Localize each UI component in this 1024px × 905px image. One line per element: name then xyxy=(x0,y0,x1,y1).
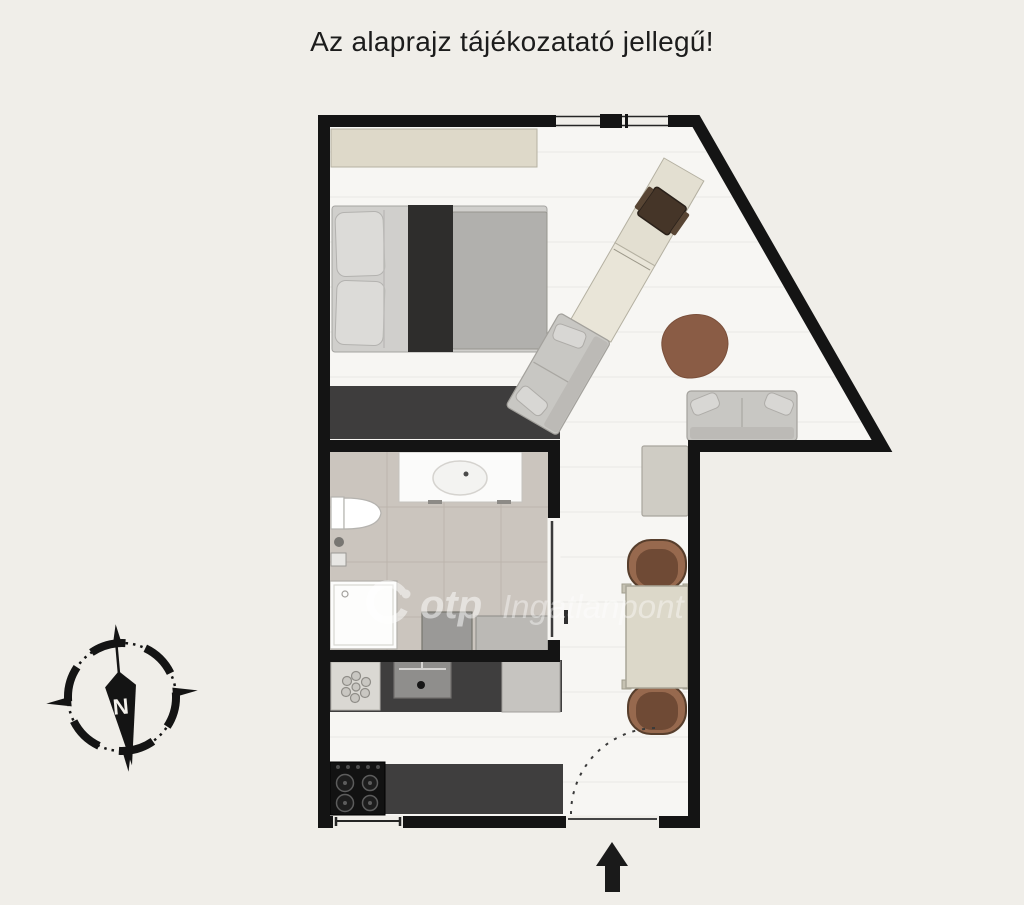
watermark-brand: otp xyxy=(420,583,482,627)
floorplan-svg: otp Ingatlanpont N xyxy=(0,0,1024,905)
kitchen-counter xyxy=(330,660,562,712)
window-icon xyxy=(556,114,668,128)
shower-icon xyxy=(330,581,397,649)
wardrobe-shelf-icon xyxy=(331,129,537,167)
watermark-suffix: Ingatlanpont xyxy=(502,588,685,625)
bathroom-accessory-icon xyxy=(334,537,344,547)
window-icon xyxy=(333,816,403,829)
double-bed-icon xyxy=(332,205,547,352)
dining-chair-icon xyxy=(628,684,686,734)
bathroom-accessory-icon xyxy=(331,553,346,566)
hall-cabinet-icon xyxy=(642,446,688,516)
compass-north-label: N xyxy=(112,693,130,719)
entrance-arrow-up-icon xyxy=(596,842,628,892)
kitchen-sink-icon xyxy=(394,661,451,698)
compass-icon: N xyxy=(40,618,204,779)
fridge-icon xyxy=(502,661,560,712)
sofa-icon xyxy=(687,391,797,441)
kitchen-counter xyxy=(330,762,563,815)
dining-chair-icon xyxy=(628,540,686,590)
stove-icon xyxy=(330,762,385,815)
watermark-logo-dot xyxy=(402,590,411,599)
floorplan-page: Az alaprajz tájékozatató jellegű! xyxy=(0,0,1024,905)
washbasin-icon xyxy=(399,452,522,504)
